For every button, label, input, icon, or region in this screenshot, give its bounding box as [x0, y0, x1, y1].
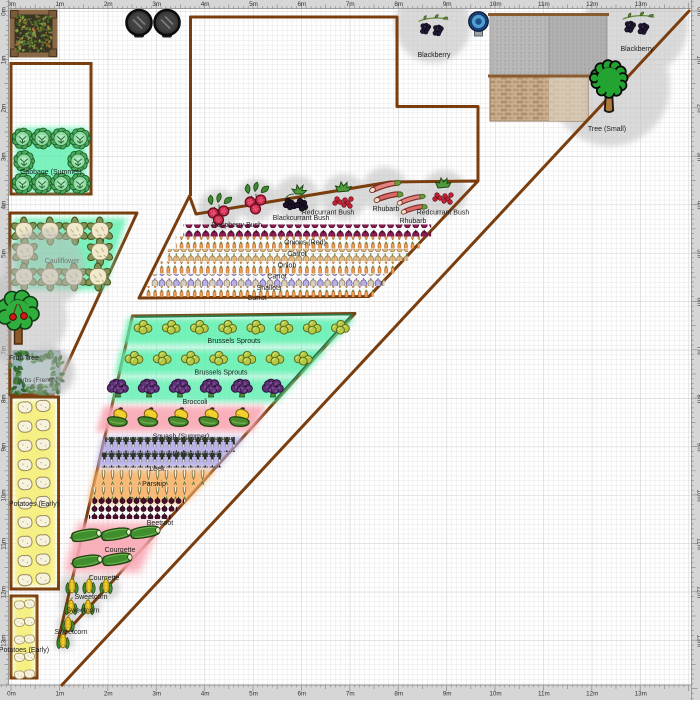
svg-text:13m: 13m	[696, 635, 700, 647]
svg-text:11m: 11m	[696, 538, 700, 550]
svg-text:Redcurrant Bush: Redcurrant Bush	[417, 210, 470, 217]
svg-text:Carrot: Carrot	[247, 295, 267, 302]
svg-text:Herbs (French): Herbs (French)	[14, 377, 58, 384]
svg-text:Cabbage (Summer): Cabbage (Summer)	[20, 169, 81, 176]
svg-text:Sweetcorn: Sweetcorn	[74, 594, 107, 601]
svg-text:5m: 5m	[696, 249, 700, 258]
svg-text:4m: 4m	[201, 1, 210, 8]
svg-text:Onions (Red): Onions (Red)	[284, 240, 326, 247]
svg-text:1m: 1m	[696, 56, 700, 65]
svg-text:11m: 11m	[1, 538, 8, 550]
svg-text:Brussels Sprouts: Brussels Sprouts	[195, 370, 248, 377]
svg-text:9m: 9m	[443, 1, 452, 8]
svg-text:4m: 4m	[1, 201, 8, 210]
svg-text:Carrot: Carrot	[287, 251, 307, 258]
svg-text:11m: 11m	[538, 691, 550, 698]
svg-text:1m: 1m	[1, 56, 8, 65]
svg-text:7m: 7m	[346, 691, 355, 698]
svg-text:12m: 12m	[586, 691, 598, 698]
svg-text:3m: 3m	[696, 152, 700, 161]
svg-text:Brussels Sprouts: Brussels Sprouts	[208, 338, 261, 345]
svg-text:9m: 9m	[443, 691, 452, 698]
svg-text:Blackberry: Blackberry	[620, 46, 654, 53]
svg-text:0m: 0m	[1, 7, 8, 16]
svg-text:Carrot: Carrot	[267, 274, 287, 281]
svg-text:3m: 3m	[1, 152, 8, 161]
svg-text:2m: 2m	[104, 1, 113, 8]
svg-text:8m: 8m	[394, 1, 403, 8]
svg-text:2m: 2m	[696, 104, 700, 113]
svg-text:12m: 12m	[1, 586, 8, 598]
svg-text:Potatoes (Early): Potatoes (Early)	[0, 647, 49, 654]
svg-text:6m: 6m	[298, 1, 307, 8]
svg-text:11m: 11m	[538, 1, 550, 8]
svg-text:13m: 13m	[1, 635, 8, 647]
svg-text:Shallots: Shallots	[257, 285, 282, 292]
svg-text:9m: 9m	[1, 443, 8, 452]
svg-text:0m: 0m	[7, 691, 16, 698]
svg-text:3m: 3m	[152, 691, 161, 698]
svg-text:0m: 0m	[696, 7, 700, 16]
svg-text:8m: 8m	[1, 394, 8, 403]
svg-text:2m: 2m	[104, 691, 113, 698]
svg-text:Onion: Onion	[278, 263, 297, 270]
svg-text:Rhubarb: Rhubarb	[400, 218, 427, 225]
svg-text:10m: 10m	[489, 1, 501, 8]
svg-text:7m: 7m	[696, 346, 700, 355]
svg-text:9m: 9m	[696, 443, 700, 452]
svg-text:8m: 8m	[696, 394, 700, 403]
svg-text:Sweetcorn: Sweetcorn	[66, 608, 99, 615]
svg-text:3m: 3m	[152, 1, 161, 8]
svg-text:Tree (Small): Tree (Small)	[588, 126, 626, 133]
svg-text:6m: 6m	[696, 298, 700, 307]
svg-text:12m: 12m	[586, 1, 598, 8]
svg-text:Broccoli: Broccoli	[183, 399, 208, 406]
svg-text:Sweetcorn: Sweetcorn	[54, 629, 87, 636]
svg-text:7m: 7m	[346, 1, 355, 8]
svg-text:Raspberry Bush: Raspberry Bush	[212, 222, 262, 229]
svg-text:1m: 1m	[56, 691, 65, 698]
svg-text:10m: 10m	[1, 489, 8, 501]
svg-text:13m: 13m	[635, 1, 647, 8]
svg-text:Blackberry: Blackberry	[417, 52, 451, 59]
svg-text:Rhubarb: Rhubarb	[373, 206, 400, 213]
svg-text:Fruit Tree: Fruit Tree	[9, 355, 39, 362]
svg-text:5m: 5m	[249, 691, 258, 698]
svg-text:Potatoes (Early): Potatoes (Early)	[9, 501, 59, 508]
svg-text:4m: 4m	[201, 691, 210, 698]
svg-text:10m: 10m	[489, 691, 501, 698]
svg-text:5m: 5m	[1, 249, 8, 258]
svg-text:6m: 6m	[298, 691, 307, 698]
svg-text:13m: 13m	[635, 691, 647, 698]
svg-text:12m: 12m	[696, 586, 700, 598]
svg-text:1m: 1m	[56, 1, 65, 8]
svg-text:Parsnip: Parsnip	[142, 481, 166, 488]
svg-text:4m: 4m	[696, 201, 700, 210]
svg-text:8m: 8m	[394, 691, 403, 698]
svg-text:10m: 10m	[696, 489, 700, 501]
svg-text:Redcurrant Bush: Redcurrant Bush	[302, 210, 355, 217]
svg-text:2m: 2m	[1, 104, 8, 113]
svg-text:5m: 5m	[249, 1, 258, 8]
